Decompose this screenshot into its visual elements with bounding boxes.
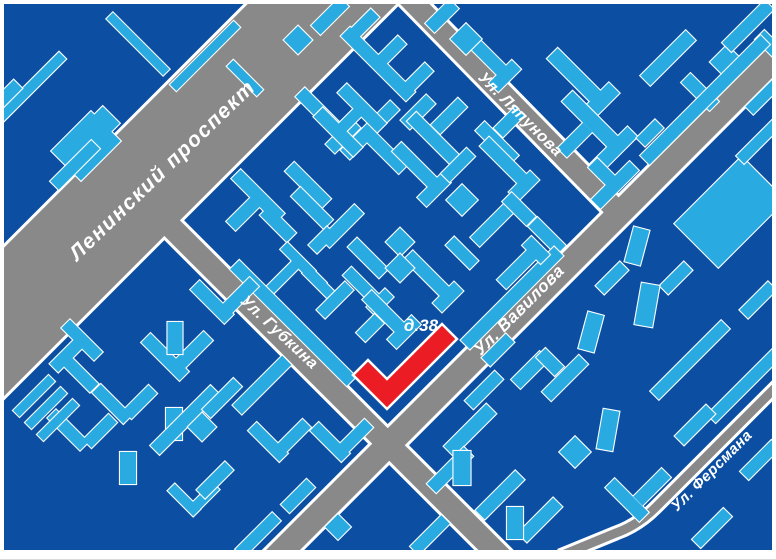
building xyxy=(120,452,136,484)
building xyxy=(454,451,471,485)
building xyxy=(168,322,183,354)
city-map: Ленинский проспект Ул. Ляпунова Ул. Губк… xyxy=(0,0,776,560)
building xyxy=(507,507,523,539)
house-38-label: д.38 xyxy=(404,316,439,335)
map-canvas: Ленинский проспект Ул. Ляпунова Ул. Губк… xyxy=(0,0,776,559)
